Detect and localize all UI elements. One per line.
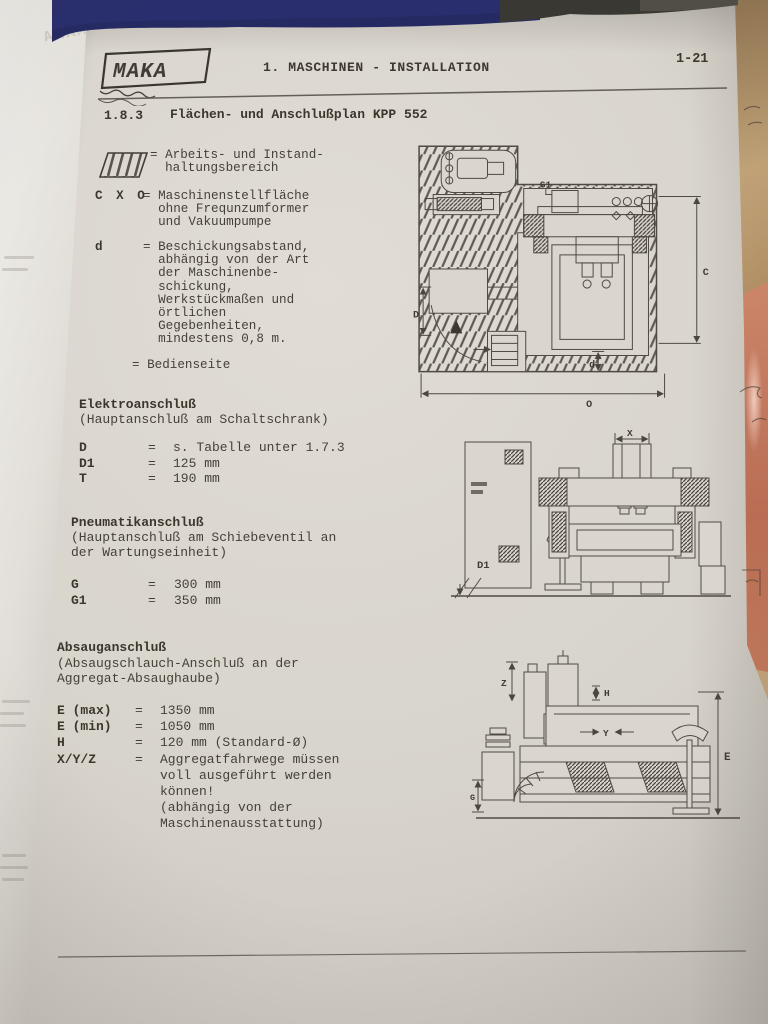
legend-work-area: = Arbeits- und Instand- haltungsbereich (150, 149, 324, 175)
electrical-heading: Elektroanschluß (79, 397, 196, 412)
dim-label-y: Y (603, 728, 609, 739)
dim-label-d-lower: d (589, 360, 595, 372)
showthrough-fragment (2, 854, 26, 857)
equals-sign: = (135, 703, 160, 719)
plan-view-drawing: G1 C D d O (405, 138, 737, 410)
hatch-area-swatch (98, 150, 150, 181)
param-value: 120 mm (Standard-Ø) (160, 735, 339, 751)
dim-label-z: Z (501, 678, 507, 689)
dim-label-x: X (627, 428, 633, 439)
param-value: 350 mm (174, 593, 221, 609)
param-value: 190 mm (173, 471, 345, 487)
param-key: X/Y/Z (57, 752, 135, 833)
section-title: Flächen- und Anschlußplan KPP 552 (170, 108, 427, 122)
param-key: H (57, 735, 135, 751)
equals-sign: = (148, 456, 173, 472)
maka-logo: MAKA (96, 46, 224, 106)
legend-operator-side: = Bedienseite (132, 359, 230, 372)
electrical-subheading: (Hauptanschluß am Schaltschrank) (79, 412, 329, 427)
pneumatic-table: G=300 mm G1=350 mm (71, 577, 221, 609)
dim-label-g: G (470, 793, 475, 803)
dim-label-h: H (604, 688, 610, 699)
dim-label-c: C (703, 268, 709, 279)
param-value: s. Tabelle unter 1.7.3 (173, 440, 345, 456)
showthrough-fragment (0, 712, 24, 715)
param-key: D1 (79, 456, 148, 472)
showthrough-fragment (0, 724, 26, 727)
equals-sign: = (148, 593, 174, 609)
equals-sign: = (135, 752, 160, 833)
dim-label-d-upper: D (413, 310, 419, 321)
electrical-table: D=s. Tabelle unter 1.7.3 D1=125 mm T=190… (79, 440, 345, 487)
param-value: 300 mm (174, 577, 221, 593)
page-number: 1-21 (676, 52, 708, 67)
param-value: 125 mm (173, 456, 345, 472)
equals-sign: = (135, 719, 160, 735)
param-key: E (max) (57, 703, 135, 719)
param-key: G1 (71, 593, 148, 609)
param-key: G (71, 577, 148, 593)
pneumatic-subheading: (Hauptanschluß am Schiebeventil an der W… (71, 530, 336, 560)
legend-cxo-label: C X O (95, 190, 148, 203)
extraction-heading: Absauganschluß (57, 640, 166, 655)
param-value: 1050 mm (160, 719, 339, 735)
param-value: 1350 mm (160, 703, 339, 719)
showthrough-fragment (2, 878, 24, 881)
front-view-drawing: X D1 (443, 426, 737, 606)
dim-label-e: E (724, 752, 731, 764)
dim-label-o: O (586, 400, 592, 410)
side-view-drawing: Z H Y E G (468, 650, 746, 825)
pencil-scribbles (738, 70, 768, 630)
section-number: 1.8.3 (104, 109, 143, 123)
legend-d-label: d (95, 241, 103, 254)
equals-sign: = (148, 471, 173, 487)
legend-cxo-text: = Maschinenstellfläche ohne Frequnzumfor… (143, 190, 309, 230)
showthrough-fragment (2, 268, 28, 271)
equals-sign: = (148, 440, 173, 456)
param-key: D (79, 440, 148, 456)
extraction-subheading: (Absaugschlauch-Anschluß an der Aggregat… (57, 656, 299, 686)
folder-band (0, 0, 768, 48)
manual-page: MAKA 1. MASCHINEN - INSTALLATION 1-21 1.… (0, 0, 768, 1024)
dim-label-d1: D1 (477, 560, 490, 572)
param-value: Aggregatfahrwege müssen voll ausgeführt … (160, 752, 339, 833)
dim-label-g1: G1 (540, 179, 552, 190)
maka-logo-text: MAKA (112, 61, 167, 84)
equals-sign: = (135, 735, 160, 751)
showthrough-fragment (4, 256, 34, 259)
showthrough-fragment (0, 866, 28, 869)
param-key: E (min) (57, 719, 135, 735)
extraction-table: E (max)=1350 mm E (min)=1050 mm H=120 mm… (57, 703, 339, 833)
chapter-title: 1. MASCHINEN - INSTALLATION (263, 60, 490, 75)
legend-d-text: = Beschickungsabstand, abhängig von der … (143, 241, 309, 347)
pneumatic-heading: Pneumatikanschluß (71, 515, 204, 530)
showthrough-fragment (2, 700, 30, 703)
equals-sign: = (148, 577, 174, 593)
param-key: T (79, 471, 148, 487)
